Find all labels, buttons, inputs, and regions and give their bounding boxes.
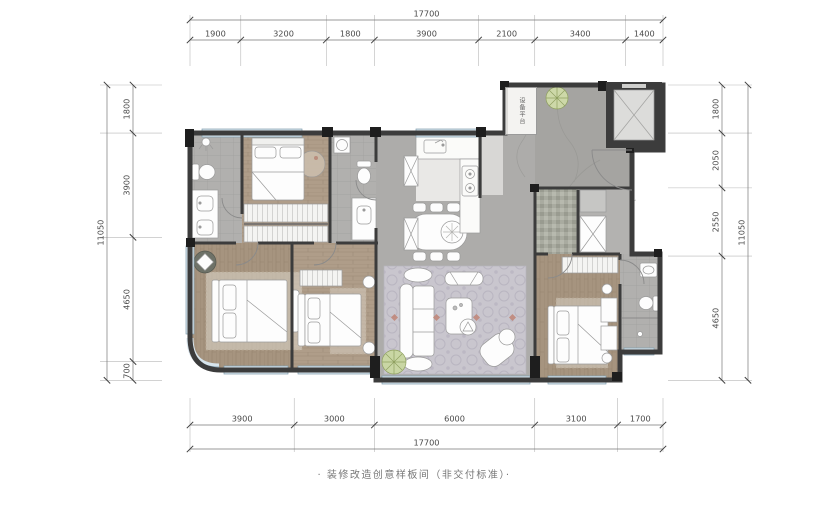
plant-icon <box>382 350 406 374</box>
toilet-tank <box>357 161 371 167</box>
dimension-label: 1400 <box>634 29 655 39</box>
stool-icon <box>602 353 612 363</box>
pillow <box>223 285 236 310</box>
sofa-seat <box>413 286 434 356</box>
dimension-label: 3900 <box>232 414 253 424</box>
caption: · 装修改造创意样板间（非交付标准）· <box>0 466 828 481</box>
dimension-label: 1800 <box>340 29 361 39</box>
stool-icon <box>363 342 375 354</box>
dining-chair <box>430 252 443 261</box>
dining-chair <box>413 252 426 261</box>
plant-icon <box>194 251 216 273</box>
toilet-icon <box>639 297 653 310</box>
pillow <box>308 298 320 319</box>
bench-icon <box>445 272 483 285</box>
dimension-label: 17700 <box>413 9 439 19</box>
dimension-label: 1800 <box>122 99 132 120</box>
dining-chair <box>413 203 426 212</box>
dimension-label: 3900 <box>122 175 132 196</box>
side-table <box>404 268 432 282</box>
floor-plan-page: 1900320018003900210034001400177003900300… <box>0 0 828 507</box>
equipment-platform-label: 设备平台 <box>505 87 537 135</box>
dimension-label: 1700 <box>630 414 651 424</box>
wardrobe-icon <box>562 257 618 273</box>
pillow <box>280 147 301 158</box>
stool-icon <box>602 284 612 294</box>
toilet-icon <box>199 165 215 180</box>
dining-chair <box>447 252 460 261</box>
entry-corridor-strip <box>482 135 503 195</box>
entry-plant-icon <box>546 87 568 109</box>
shower-icon <box>202 138 210 146</box>
dimension-label: 2050 <box>711 150 721 171</box>
pillow <box>223 313 236 338</box>
wardrobe-icon <box>244 204 328 222</box>
dimension-label: 2550 <box>711 212 721 233</box>
headboard <box>298 294 305 346</box>
dimension-label: 11050 <box>96 220 106 246</box>
dimension-label: 1900 <box>205 29 226 39</box>
dimension-label: 3200 <box>273 29 294 39</box>
pillow <box>557 338 569 362</box>
dimension-label: 3100 <box>566 414 587 424</box>
toilet-tank <box>192 164 199 180</box>
sofa-icon <box>400 284 413 358</box>
stove-icon <box>462 166 478 196</box>
dimension-label: 17700 <box>413 438 439 448</box>
elevator <box>606 82 662 148</box>
living-room <box>382 266 526 374</box>
floor-plan-drawing: 1900320018003900210034001400177003900300… <box>0 0 828 507</box>
dimension-label: 4650 <box>711 308 721 329</box>
wardrobe-icon <box>244 226 328 242</box>
dining-chair <box>430 203 443 212</box>
utility-room <box>580 190 606 252</box>
side-table <box>404 357 432 371</box>
dresser-icon <box>601 298 617 322</box>
headboard <box>548 306 554 364</box>
dimension-label: 3900 <box>416 29 437 39</box>
dimension-label: 2100 <box>496 29 517 39</box>
appliance-icon <box>580 190 606 212</box>
dimension-label: 4650 <box>122 289 132 310</box>
utility-mosaic-floor <box>535 188 578 254</box>
dimension-label: 3000 <box>324 414 345 424</box>
daybed-icon <box>300 270 342 286</box>
dimension-label: 11050 <box>737 220 747 246</box>
bedroom2 <box>298 270 375 354</box>
dresser-icon <box>601 326 617 350</box>
toilet-icon <box>358 168 371 184</box>
headboard <box>212 280 219 342</box>
stool-icon <box>363 276 375 288</box>
dimension-label: 1800 <box>711 99 721 120</box>
dimension-label: 700 <box>122 363 132 379</box>
pillow <box>557 311 569 335</box>
shower-drain <box>638 332 643 337</box>
dimension-label: 6000 <box>444 414 465 424</box>
ottoman-icon <box>499 329 515 345</box>
dining-chair <box>447 203 460 212</box>
dimension-label: 3400 <box>570 29 591 39</box>
pillow <box>255 147 276 158</box>
pillow <box>308 322 320 343</box>
